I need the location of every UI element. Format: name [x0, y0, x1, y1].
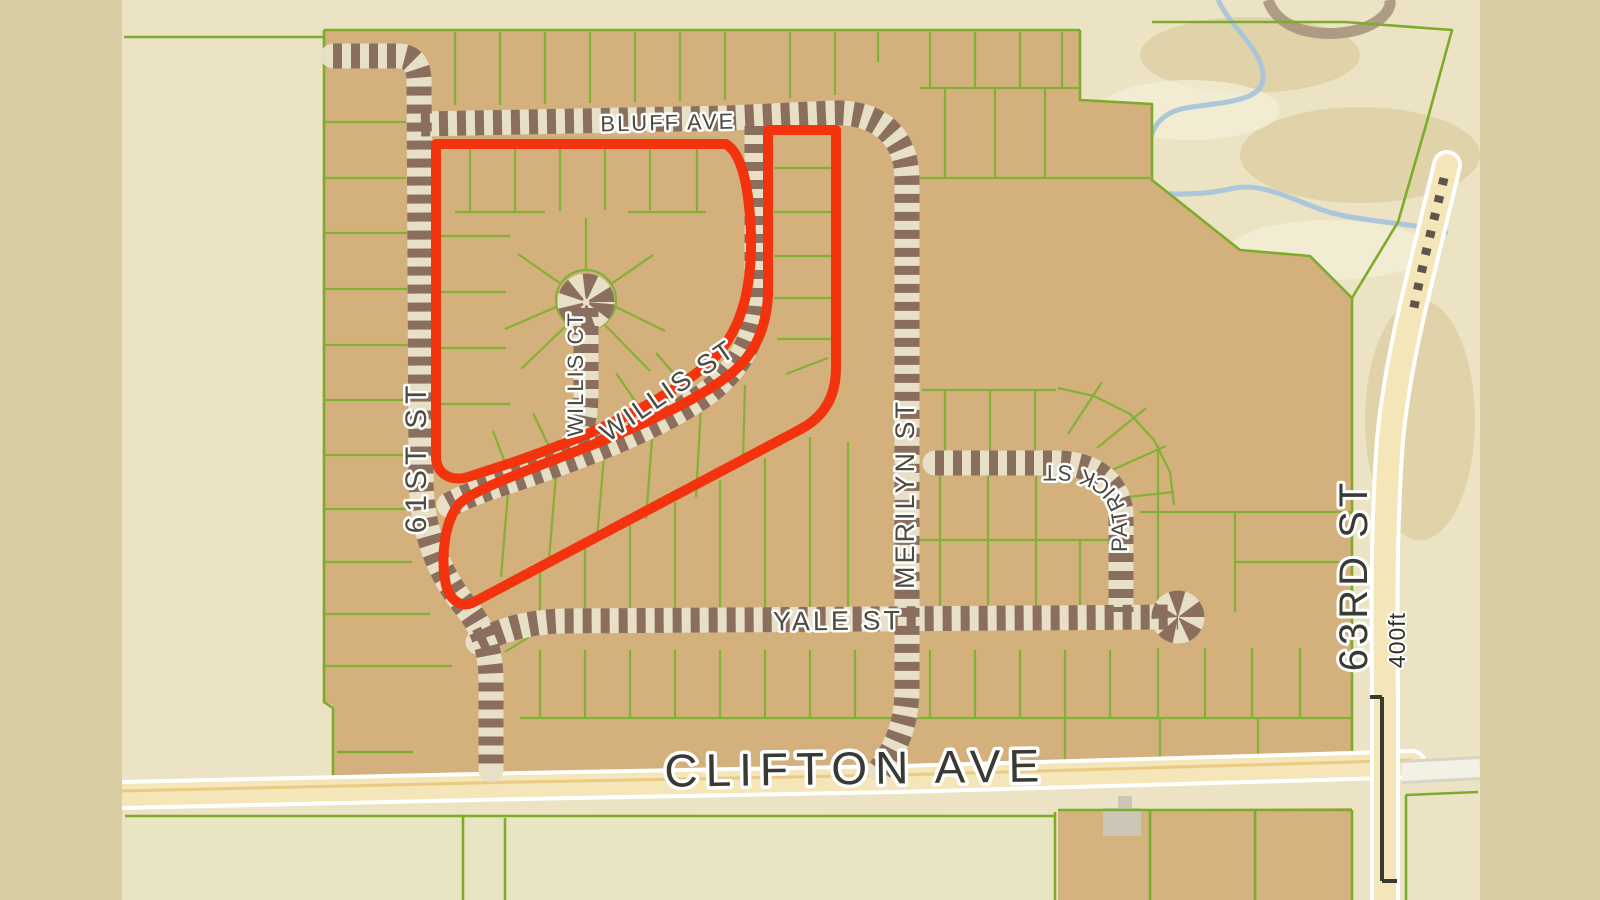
street-label-63rd-st: 63RD ST [1332, 479, 1376, 672]
pale-parcel-below-clifton [125, 812, 1055, 900]
right-edge [1480, 0, 1600, 900]
side-road-east [1402, 768, 1480, 772]
map-image[interactable]: BLUFF AVE WILLIS CT WILLIS ST 61ST ST ME… [0, 0, 1600, 900]
tan-parcel-below-clifton [1058, 808, 1352, 900]
street-label-clifton-ave: CLIFTON AVE [664, 739, 1048, 796]
building-footprint-small [1118, 796, 1132, 810]
left-edge [0, 0, 122, 900]
scale-label: 400ft [1384, 612, 1410, 668]
street-label-yale-st: YALE ST [773, 605, 903, 636]
street-label-willis-ct: WILLIS CT [563, 311, 588, 437]
street-label-bluff-ave: BLUFF AVE [600, 109, 735, 137]
street-label-61st-st: 61ST ST [400, 381, 433, 534]
street-label-merilyn-st: MERILYN ST [890, 399, 920, 589]
map-canvas[interactable]: BLUFF AVE WILLIS CT WILLIS ST 61ST ST ME… [0, 0, 1600, 900]
building-footprint [1103, 808, 1141, 836]
